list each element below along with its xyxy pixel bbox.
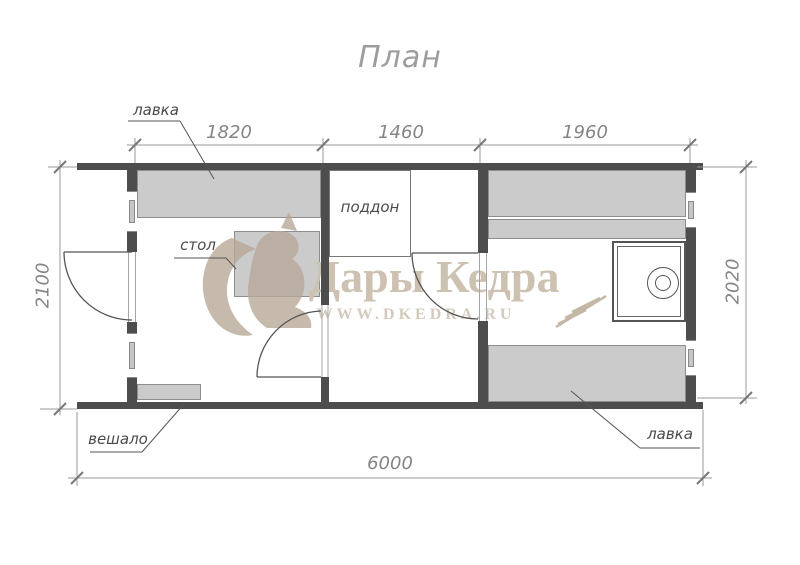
dim-top-room2: 1460 [361, 122, 441, 143]
floor-plan-canvas: План Дары Кедра WWW.DKEDRA.RU [0, 0, 800, 565]
door-arc-entrance [64, 252, 132, 320]
door-jamb-lines [129, 252, 487, 377]
page-title: План [330, 40, 470, 75]
leader-lines [90, 121, 700, 452]
label-bench-bottom: лавка [640, 425, 700, 443]
dim-left-height: 2100 [33, 249, 54, 323]
dim-top-room1: 1820 [189, 122, 269, 143]
label-table: стол [170, 236, 226, 254]
door-arc-room1 [257, 311, 321, 377]
label-hanger: вешало [86, 430, 150, 448]
label-bench-top: лавка [126, 101, 186, 119]
door-swing-arcs [64, 252, 478, 377]
dim-bottom-total: 6000 [350, 453, 430, 474]
dim-right-height: 2020 [723, 245, 744, 319]
drawing-linework [0, 0, 800, 565]
door-arc-room2 [412, 253, 478, 319]
label-shower-tray: поддон [331, 198, 409, 216]
dim-top-room3: 1960 [545, 122, 625, 143]
